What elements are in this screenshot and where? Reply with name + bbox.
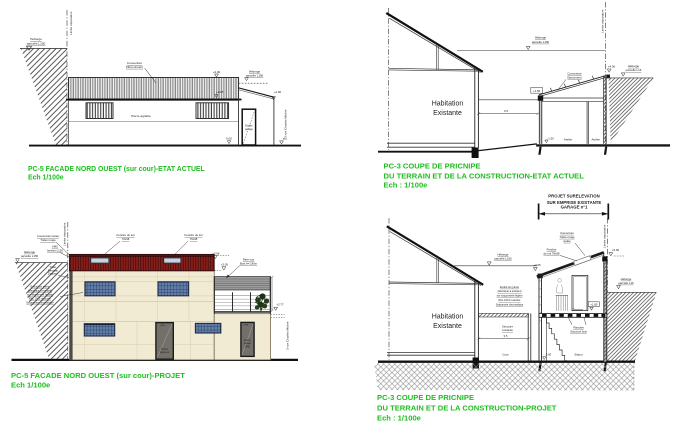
svg-text:Ech 1/100e: Ech 1/100e — [11, 380, 50, 389]
svg-text:Existante: Existante — [433, 110, 462, 117]
svg-text:Structure: Structure — [502, 324, 513, 328]
svg-text:Pierre agrafée: Pierre agrafée — [131, 114, 151, 118]
svg-text:Enduit ton pierre: Enduit ton pierre — [30, 285, 50, 289]
svg-text:-1.50: -1.50 — [547, 136, 554, 140]
svg-text:Ech : 1/100e: Ech : 1/100e — [384, 181, 428, 190]
svg-text:Habitation: Habitation — [432, 101, 464, 108]
svg-text:Habitation: Habitation — [432, 314, 464, 321]
svg-text:existante: existante — [502, 328, 513, 332]
svg-text:Séjour: Séjour — [574, 353, 582, 357]
svg-text:RAL 1013 nuancier: RAL 1013 nuancier — [29, 297, 51, 301]
svg-text:0.00: 0.00 — [226, 137, 232, 141]
svg-text:Bois h=1.80m: Bois h=1.80m — [240, 261, 258, 265]
svg-text:+4.05: +4.05 — [533, 263, 541, 267]
svg-text:Tuiles rouge: Tuiles rouge — [40, 238, 56, 242]
svg-text:+2.77: +2.77 — [276, 303, 284, 307]
svg-text:parcelle L150: parcelle L150 — [21, 254, 39, 258]
svg-text:GARAGE n°1: GARAGE n°1 — [561, 205, 588, 210]
svg-text:+1.80: +1.80 — [533, 89, 541, 93]
svg-text:+4.00: +4.00 — [213, 70, 221, 74]
svg-text:76x98: 76x98 — [190, 237, 198, 241]
svg-text:Limite séparative: Limite séparative — [603, 224, 607, 248]
svg-text:PC-3 COUPE DE PRICNIPE: PC-3 COUPE DE PRICNIPE — [384, 161, 481, 170]
svg-text:garage: garage — [244, 342, 252, 345]
svg-text:Atelier: Atelier — [592, 137, 601, 141]
svg-text:Existante: Existante — [433, 323, 462, 330]
svg-text:sur alignement façade: sur alignement façade — [27, 293, 53, 297]
svg-text:PROJET SURELEVATION: PROJET SURELEVATION — [548, 194, 599, 199]
svg-text:logement: logement — [160, 351, 170, 354]
svg-text:Limite séparative: Limite séparative — [63, 222, 67, 246]
svg-text:Limite séparative: Limite séparative — [600, 9, 604, 33]
svg-text:+2.90: +2.90 — [274, 90, 282, 94]
svg-text:3.5: 3.5 — [504, 334, 508, 338]
svg-text:3 rue Charles Michel: 3 rue Charles Michel — [286, 321, 290, 350]
svg-text:DU TERRAIN ET DE LA CONSTRUCTI: DU TERRAIN ET DE LA CONSTRUCTION-ETAT AC… — [384, 172, 585, 181]
svg-text:fenêtre L150: fenêtre L150 — [47, 249, 63, 253]
svg-text:DU TERRAIN ET DE LA CONSTRUCTI: DU TERRAIN ET DE LA CONSTRUCTION-PROJET — [377, 403, 557, 412]
svg-text:Chambre: Chambre — [572, 307, 584, 311]
svg-text:(identique à existant): (identique à existant) — [497, 289, 521, 293]
svg-text:3.5: 3.5 — [504, 109, 509, 113]
svg-text:Ech 1/100e: Ech 1/100e — [28, 175, 64, 182]
svg-text:Limite séparative: Limite séparative — [69, 11, 73, 35]
svg-text:Entrée: Entrée — [244, 339, 251, 342]
svg-text:isolée: isolée — [563, 239, 571, 243]
svg-text:Héberge: Héberge — [30, 37, 42, 41]
svg-text:+3.96: +3.96 — [212, 251, 220, 255]
svg-text:de toit 78x98: de toit 78x98 — [543, 251, 559, 255]
svg-text:(identique à existant): (identique à existant) — [28, 289, 52, 293]
svg-text:RAL 1013 nuancier: RAL 1013 nuancier — [498, 298, 520, 302]
svg-text:PC-3 COUPE DE PRICNIPE: PC-3 COUPE DE PRICNIPE — [377, 393, 474, 402]
svg-text:(PM): (PM) — [245, 346, 250, 348]
svg-text:+4.00: +4.00 — [608, 65, 616, 69]
svg-text:+1.80: +1.80 — [590, 303, 598, 307]
svg-text:parcelle L160: parcelle L160 — [494, 257, 512, 261]
svg-text:Fibro-ciment: Fibro-ciment — [126, 65, 143, 69]
svg-text:Seigneurie chromatique: Seigneurie chromatique — [496, 302, 524, 306]
svg-text:PC-5 FACADE NORD OUEST (sur co: PC-5 FACADE NORD OUEST (sur cour)-ETAT A… — [28, 166, 205, 173]
svg-text:(PM): (PM) — [244, 325, 249, 327]
svg-text:Structure bois: Structure bois — [570, 329, 587, 333]
svg-text:Enduit ton pierre: Enduit ton pierre — [500, 285, 520, 289]
svg-text:PC-5 FACADE NORD OUEST (sur co: PC-5 FACADE NORD OUEST (sur cour)-PROJET — [11, 371, 185, 380]
svg-text:sur maçonnerie légère: sur maçonnerie légère — [497, 294, 523, 298]
svg-text:76x98: 76x98 — [122, 237, 130, 241]
svg-text:parcelle L156: parcelle L156 — [246, 73, 264, 77]
svg-text:(PM): (PM) — [160, 325, 165, 327]
svg-text:Cour: Cour — [502, 352, 508, 356]
svg-text:parcelle L16: parcelle L16 — [618, 281, 634, 285]
svg-text:parcelle L160: parcelle L160 — [532, 40, 550, 44]
svg-text:Seigneurie chromatique: Seigneurie chromatique — [26, 301, 54, 305]
svg-text:+5.90: +5.90 — [612, 248, 620, 252]
svg-text:fibrociment: fibrociment — [567, 75, 581, 79]
svg-text:Ech : 1/100e: Ech : 1/100e — [377, 413, 421, 422]
svg-text:+3.05: +3.05 — [221, 263, 229, 267]
svg-text:garage: garage — [245, 128, 253, 131]
svg-text:Entrée: Entrée — [161, 348, 168, 351]
svg-text:parcelle L16: parcelle L16 — [626, 68, 642, 72]
svg-text:Atelier: Atelier — [564, 137, 573, 141]
svg-text:parcelle L150: parcelle L150 — [27, 42, 46, 46]
svg-text:Zinguerie: Zinguerie — [48, 273, 59, 276]
svg-text:3 rue Charles Michel: 3 rue Charles Michel — [284, 109, 288, 138]
svg-text:+3.05: +3.05 — [216, 90, 224, 94]
svg-text:0.00: 0.00 — [546, 353, 552, 357]
svg-text:Plancher: Plancher — [573, 326, 584, 330]
